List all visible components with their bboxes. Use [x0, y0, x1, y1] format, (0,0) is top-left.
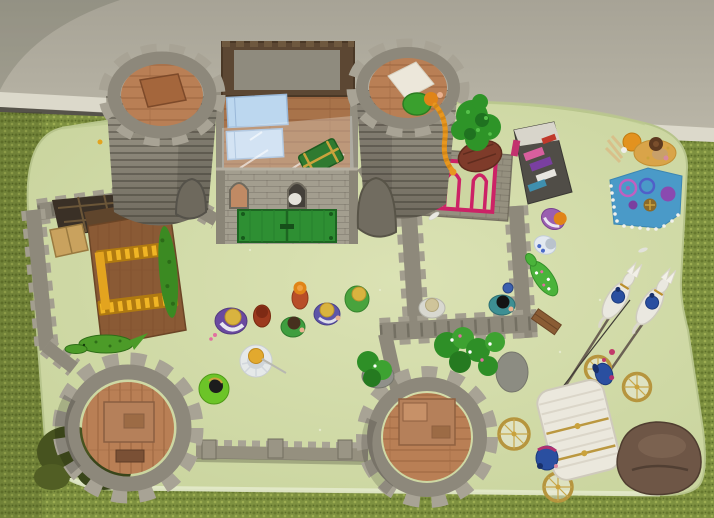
- keep-window-left: [230, 183, 248, 208]
- villager-red: [292, 282, 308, 310]
- pink-flower-trim: [602, 358, 606, 362]
- tower-sc-pillow: [403, 403, 427, 421]
- croc-eye: [83, 344, 85, 346]
- tower-sw-box: [124, 414, 144, 428]
- maiden-arm: [437, 92, 443, 98]
- figure-teal: [489, 295, 515, 315]
- tower-northwest: [98, 51, 219, 226]
- hair: [320, 303, 334, 317]
- hair: [225, 309, 241, 325]
- window-white-object: [289, 193, 302, 205]
- castle-keep: [216, 42, 368, 244]
- pink-flower-trim: [609, 349, 615, 355]
- east-left-wall: [409, 216, 417, 338]
- noblewoman-blue: [314, 303, 341, 325]
- hair: [288, 317, 301, 330]
- keep-balcony-opening: [234, 50, 340, 90]
- wheel: [624, 374, 651, 401]
- keep-left-column: [216, 168, 225, 244]
- brown-rock: [617, 422, 701, 495]
- yellow-bit: [98, 140, 103, 145]
- villager-green: [281, 317, 305, 338]
- tower-sw-bench: [116, 450, 144, 462]
- figure-grey: [419, 298, 445, 318]
- playmobil-castle-photo: [0, 0, 714, 518]
- purple-trinket: [661, 187, 676, 202]
- hand: [300, 328, 305, 333]
- keep-right-column: [349, 168, 358, 244]
- grey-rock-east: [496, 352, 528, 392]
- villager-lime: [345, 286, 369, 312]
- tower-sc-box: [432, 426, 450, 438]
- blue-ball: [503, 283, 513, 293]
- hair: [497, 296, 510, 309]
- picnic-arm: [621, 147, 627, 153]
- wheel: [499, 419, 529, 449]
- wall-pillar: [202, 440, 216, 459]
- wall-pillar: [338, 440, 352, 459]
- hair: [249, 349, 264, 364]
- hair: [256, 306, 268, 318]
- keep-gate: [238, 210, 336, 242]
- blue-blanket: [609, 168, 682, 231]
- gate-handle: [280, 224, 294, 229]
- hair: [352, 287, 366, 301]
- wall-pillar: [268, 439, 283, 458]
- friar-green: [199, 374, 229, 404]
- braid-tip: [450, 169, 457, 176]
- hair: [426, 299, 439, 312]
- carriage-footman: [536, 446, 558, 470]
- monk-russet: [254, 305, 271, 327]
